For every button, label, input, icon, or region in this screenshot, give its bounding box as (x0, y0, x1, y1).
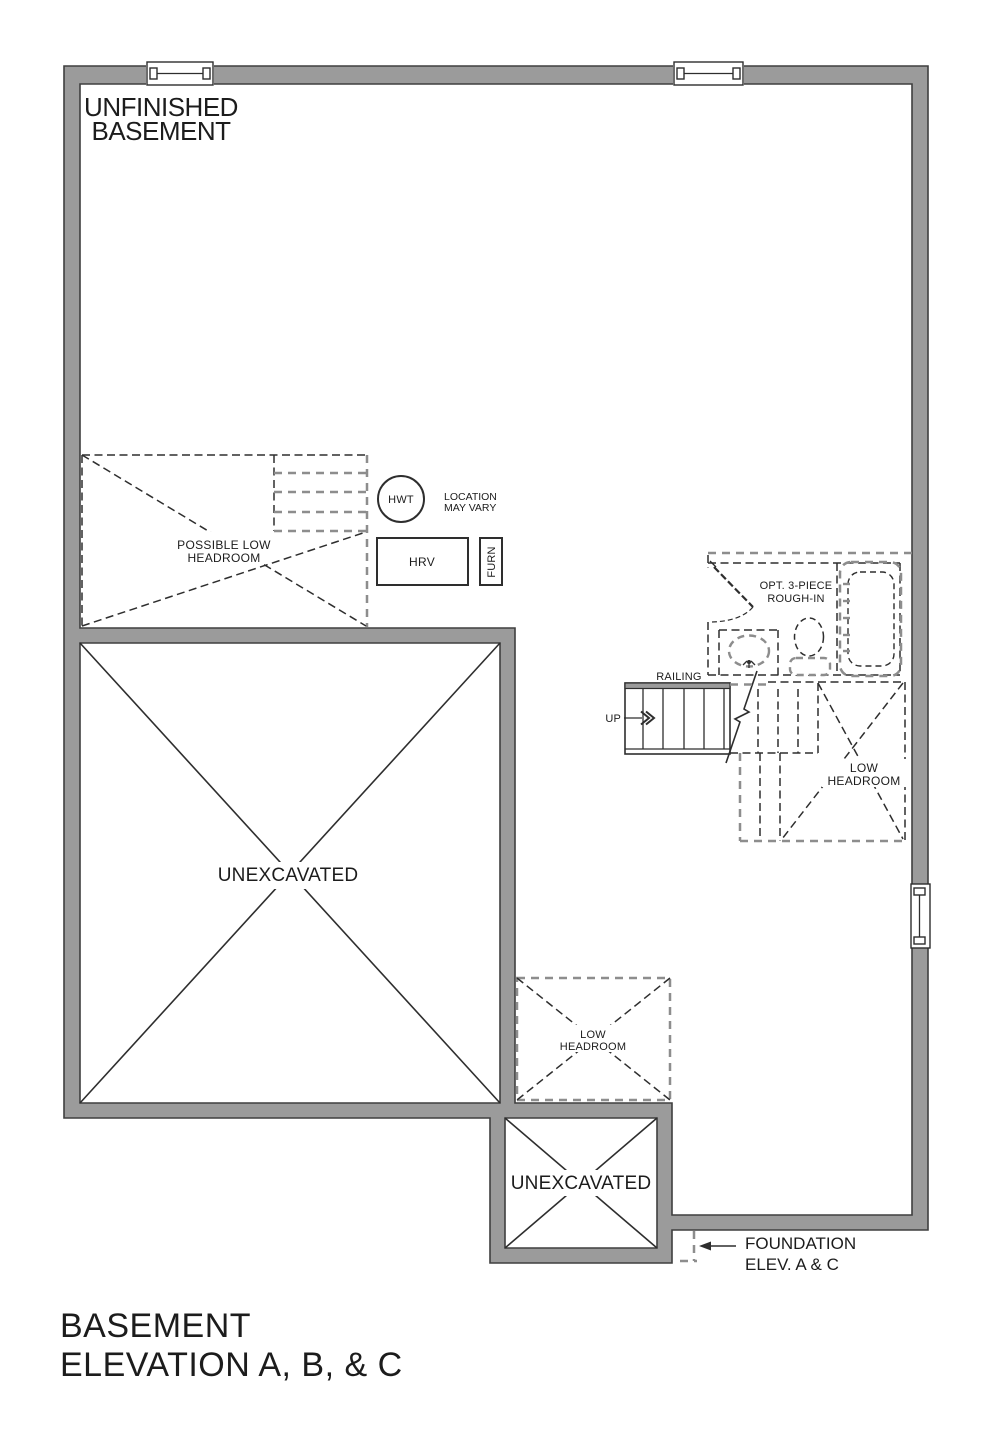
foundation-note: FOUNDATION ELEV. A & C (680, 1231, 856, 1274)
window-symbol-right-wall (911, 884, 931, 948)
window-jamb (150, 68, 157, 79)
foundation-label-line2: ELEV. A & C (745, 1255, 839, 1274)
low-headroom-label: LOW (580, 1029, 606, 1041)
window-symbol-top-right (673, 62, 744, 85)
possible-low-headroom-label: POSSIBLE LOW (177, 538, 271, 552)
sink-drain (747, 660, 751, 664)
door-swing (710, 561, 753, 622)
bathroom-rough-in: OPT. 3-PIECE ROUGH-IN (708, 553, 912, 676)
rough-in-label-line1: OPT. 3-PIECE (760, 580, 833, 592)
toilet-tank (790, 658, 830, 675)
window-jamb (203, 68, 210, 79)
window-symbol-top-left (146, 62, 214, 85)
rough-in-label-line2: ROUGH-IN (767, 593, 824, 605)
railing-bar (625, 683, 730, 689)
low-headroom-label: HEADROOM (827, 774, 900, 788)
unexcavated-label: UNEXCAVATED (511, 1173, 652, 1194)
window-jamb (914, 888, 925, 895)
bathtub-symbol (840, 562, 901, 676)
title-line2: ELEVATION A, B, & C (60, 1346, 403, 1384)
railing-label: RAILING (656, 671, 701, 683)
basement-floor-plan-page: POSSIBLE LOW HEADROOM HWT LOCATION MAY V… (0, 0, 1000, 1445)
unfinished-basement-label-line2: BASEMENT (91, 116, 231, 146)
furnace-label: FURN (486, 546, 498, 577)
toilet-symbol (790, 618, 830, 675)
window-jamb (733, 68, 740, 79)
location-note-line2: MAY VARY (444, 502, 496, 514)
up-label: UP (605, 713, 621, 725)
staircase: RAILING UP (605, 671, 905, 841)
door-swing-arc (712, 607, 753, 622)
hwt-symbol: HWT (378, 476, 424, 522)
location-note: LOCATION MAY VARY (444, 491, 497, 514)
basement-floor-plan: POSSIBLE LOW HEADROOM HWT LOCATION MAY V… (0, 0, 1000, 1445)
title-line1: BASEMENT (60, 1307, 251, 1345)
drawing-title: BASEMENT ELEVATION A, B, & C (60, 1307, 403, 1384)
tub-basin (848, 572, 894, 666)
possible-low-headroom-label: HEADROOM (187, 551, 260, 565)
low-headroom-label: HEADROOM (560, 1041, 626, 1053)
window-jamb (677, 68, 684, 79)
window-jamb (914, 937, 925, 944)
hwt-label: HWT (388, 494, 414, 506)
door-hinge-tick (710, 561, 716, 567)
hrv-label: HRV (409, 555, 435, 569)
sink-handle (743, 661, 747, 665)
unexcavated-main-area: UNEXCAVATED (80, 643, 500, 1103)
foundation-label-line1: FOUNDATION (745, 1234, 856, 1253)
low-headroom-stairs-area: LOW HEADROOM (782, 682, 906, 841)
low-headroom-mid-area: LOW HEADROOM (517, 978, 670, 1100)
low-headroom-label: LOW (850, 761, 879, 775)
unexcavated-label: UNEXCAVATED (218, 865, 359, 886)
possible-low-headroom-area: POSSIBLE LOW HEADROOM (82, 455, 367, 627)
sink-handle (751, 661, 755, 665)
room-label: UNFINISHED BASEMENT (84, 92, 238, 146)
unexcavated-small-area: UNEXCAVATED (505, 1118, 657, 1248)
door-leaf (714, 567, 753, 607)
furnace-box: FURN (480, 538, 502, 585)
pointer-arrow-head (699, 1242, 711, 1251)
toilet-bowl (795, 618, 824, 656)
hrv-box: HRV (377, 538, 468, 585)
sink-symbol (719, 630, 778, 675)
